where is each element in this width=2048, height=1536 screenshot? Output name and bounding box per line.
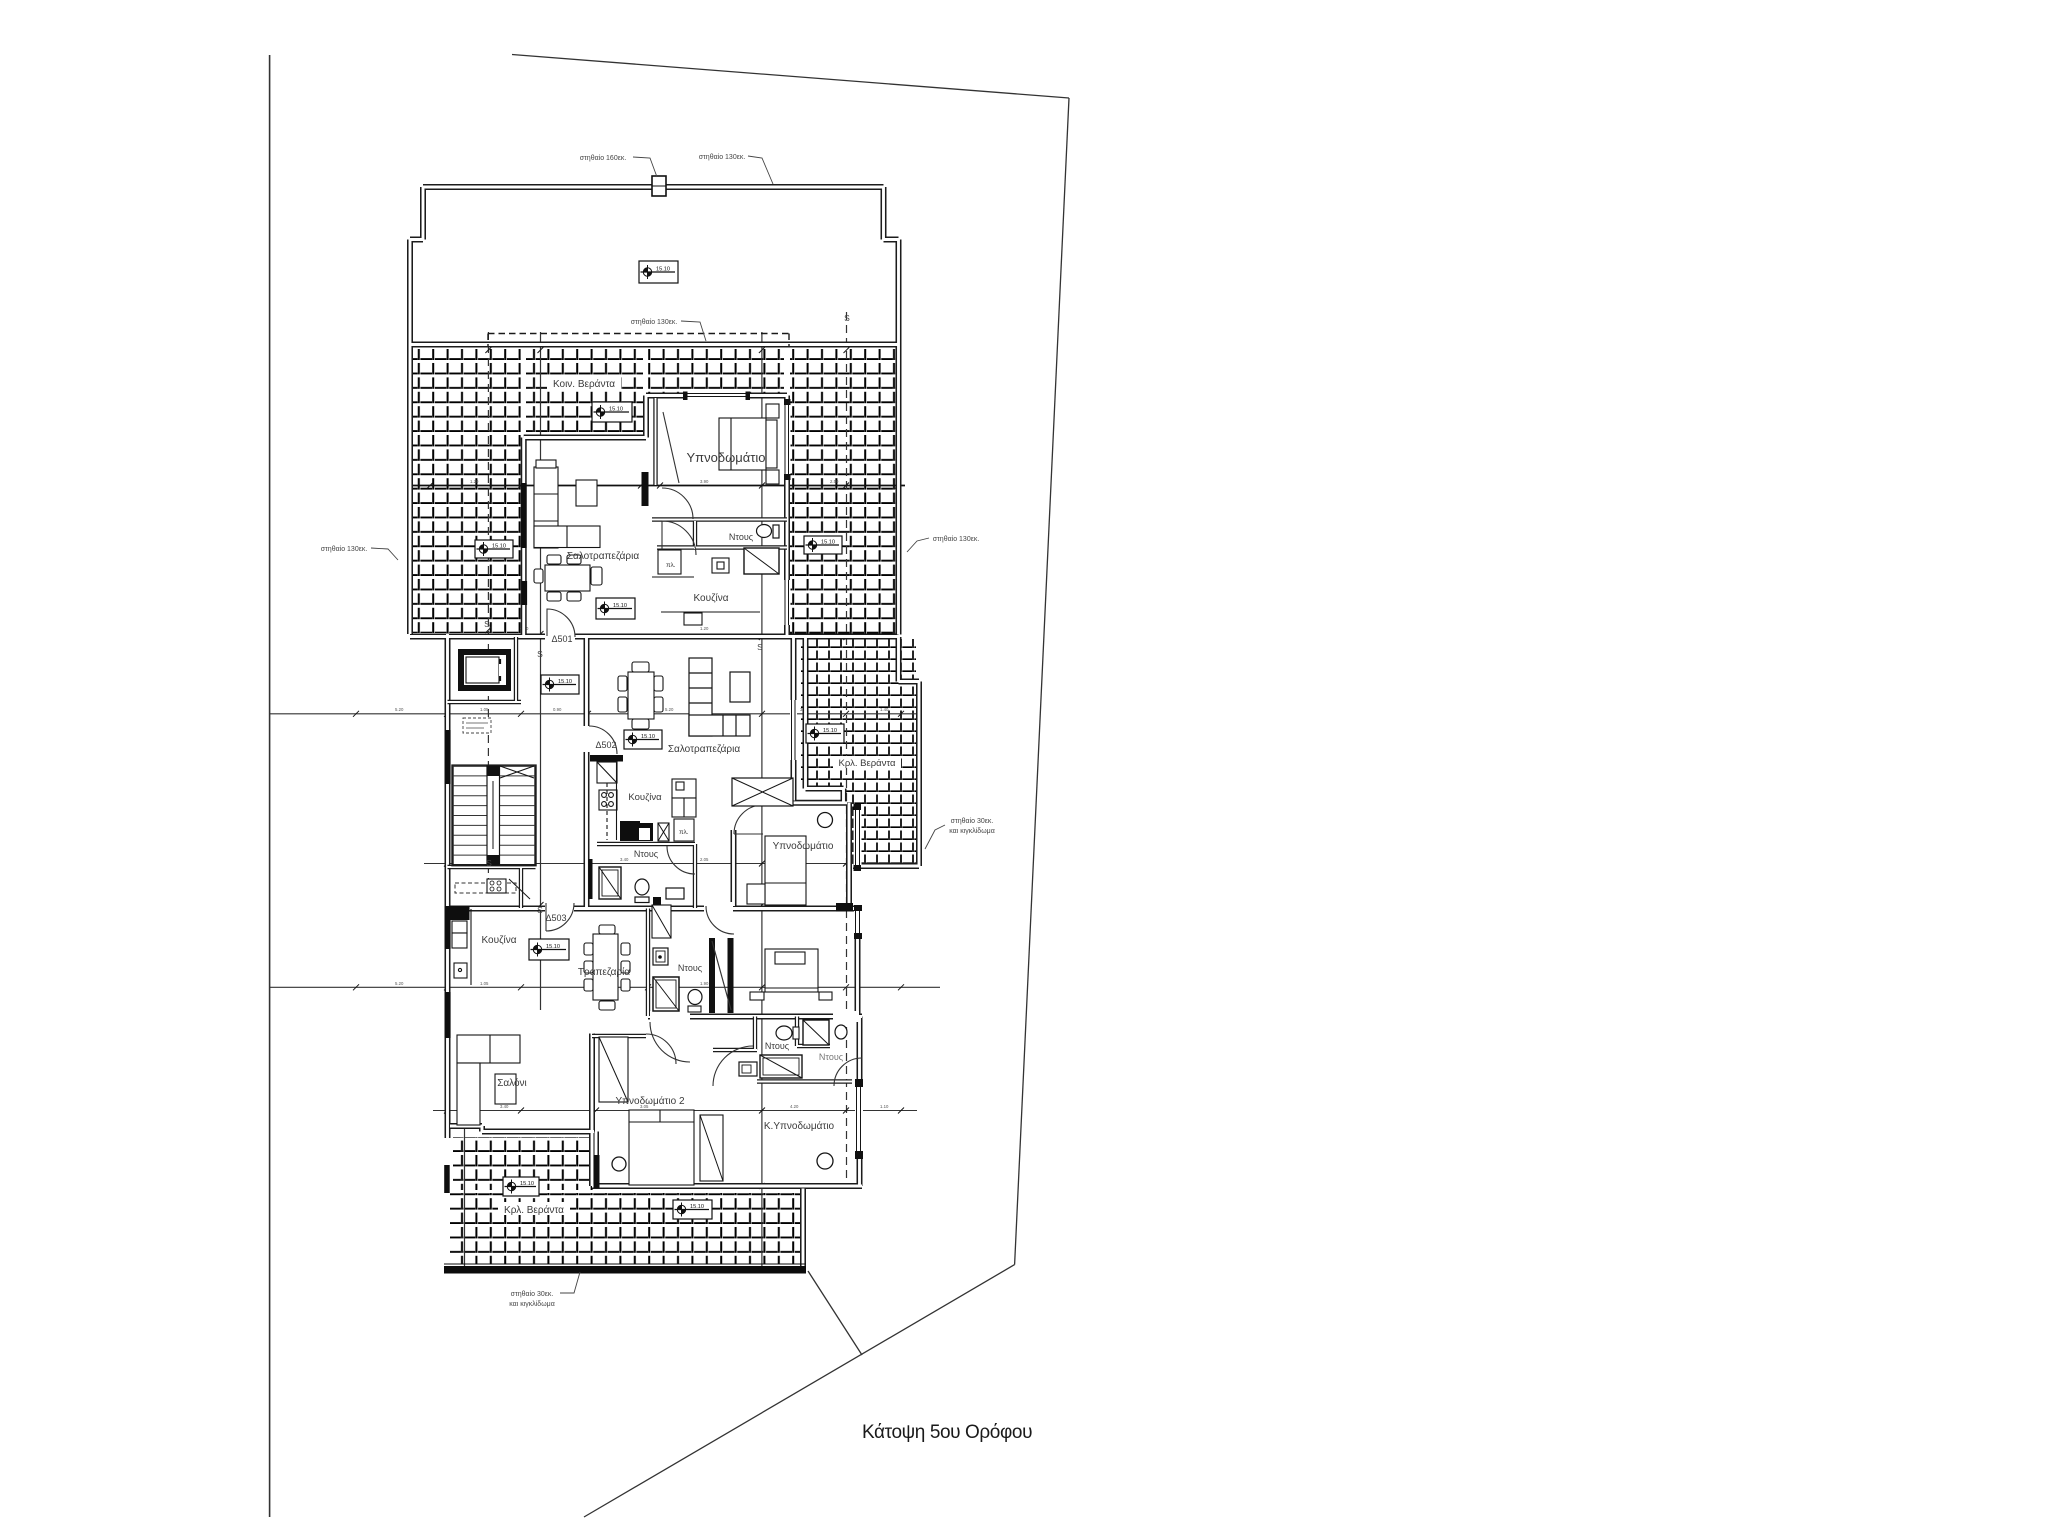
svg-text:στηθαίο 130εκ.: στηθαίο 130εκ.: [933, 535, 980, 543]
svg-text:3.40: 3.40: [500, 1104, 509, 1109]
svg-text:Κοιν. Βεράντα: Κοιν. Βεράντα: [553, 378, 615, 390]
svg-text:Υπνοδωμάτιο: Υπνοδωμάτιο: [773, 840, 834, 852]
svg-text:1.10: 1.10: [880, 1104, 889, 1109]
svg-text:2.05: 2.05: [700, 857, 709, 862]
svg-text:15.10: 15.10: [520, 1181, 534, 1187]
svg-text:15.10: 15.10: [656, 267, 670, 273]
svg-text:στηθαίο 30εκ.: στηθαίο 30εκ.: [511, 1290, 554, 1298]
svg-text:Τραπεζαρία: Τραπεζαρία: [578, 966, 630, 978]
svg-text:Δ502: Δ502: [595, 740, 616, 750]
svg-text:S: S: [486, 858, 492, 868]
svg-text:Κουζίνα: Κουζίνα: [694, 592, 729, 604]
svg-text:15.10: 15.10: [823, 728, 837, 734]
svg-text:Υπνοδωμάτιο 2: Υπνοδωμάτιο 2: [615, 1095, 685, 1107]
svg-text:S: S: [537, 905, 543, 915]
svg-text:1.90: 1.90: [700, 981, 709, 986]
svg-text:Κρλ. Βεράντα: Κρλ. Βεράντα: [839, 758, 896, 769]
svg-text:Ντους: Ντους: [765, 1041, 790, 1051]
svg-text:S: S: [757, 642, 763, 652]
svg-text:15.10: 15.10: [821, 540, 835, 546]
svg-text:Κάτοψη 5ου Ορόφου: Κάτοψη 5ου Ορόφου: [862, 1422, 1032, 1443]
svg-text:S: S: [537, 649, 543, 659]
svg-text:5.20: 5.20: [395, 981, 404, 986]
svg-text:πλ.: πλ.: [666, 562, 676, 569]
svg-text:Ντους: Ντους: [729, 532, 754, 542]
svg-text:Κ.Υπνοδωμάτιο: Κ.Υπνοδωμάτιο: [764, 1120, 835, 1132]
svg-text:15.10: 15.10: [613, 603, 627, 609]
svg-text:Δ503: Δ503: [545, 913, 566, 923]
svg-text:5.20: 5.20: [395, 707, 404, 712]
svg-text:Κρλ. Βεράντα: Κρλ. Βεράντα: [504, 1204, 564, 1216]
svg-text:0.90: 0.90: [553, 707, 562, 712]
svg-text:Ντους: Ντους: [678, 963, 703, 973]
svg-text:Σαλοτραπεζάρια: Σαλοτραπεζάρια: [567, 550, 639, 562]
svg-text:στηθαίο 130εκ.: στηθαίο 130εκ.: [699, 153, 746, 161]
svg-text:Δ501: Δ501: [551, 634, 572, 644]
svg-text:Ντους: Ντους: [819, 1052, 844, 1062]
svg-text:5.20: 5.20: [665, 707, 674, 712]
svg-text:1.05: 1.05: [480, 981, 489, 986]
svg-text:15.10: 15.10: [609, 407, 623, 413]
svg-text:Ντους: Ντους: [634, 849, 659, 859]
svg-text:S: S: [484, 619, 490, 629]
svg-text:15.10: 15.10: [690, 1204, 704, 1210]
svg-text:στηθαίο 130εκ.: στηθαίο 130εκ.: [321, 545, 368, 553]
svg-text:1.05: 1.05: [480, 707, 489, 712]
svg-text:2.50: 2.50: [830, 479, 839, 484]
svg-text:1.40: 1.40: [880, 707, 889, 712]
svg-text:S: S: [844, 313, 850, 323]
svg-text:15.10: 15.10: [558, 679, 572, 685]
svg-text:Σαλόνι: Σαλόνι: [497, 1077, 527, 1089]
svg-text:πλ.: πλ.: [679, 829, 689, 836]
svg-text:15.10: 15.10: [492, 544, 506, 550]
svg-text:και κιγκλίδωμα: και κιγκλίδωμα: [509, 1300, 555, 1308]
svg-text:3.90: 3.90: [700, 479, 709, 484]
svg-text:Υπνοδωμάτιο: Υπνοδωμάτιο: [686, 450, 765, 465]
svg-text:στηθαίο 130εκ.: στηθαίο 130εκ.: [631, 318, 678, 326]
svg-text:Κουζίνα: Κουζίνα: [628, 792, 662, 803]
svg-text:3.40: 3.40: [620, 857, 629, 862]
svg-text:Σαλοτραπεζάρια: Σαλοτραπεζάρια: [668, 743, 740, 755]
svg-text:15.10: 15.10: [641, 734, 655, 740]
svg-text:Κουζίνα: Κουζίνα: [482, 934, 517, 946]
svg-text:1.20: 1.20: [700, 626, 709, 631]
svg-text:4.20: 4.20: [790, 1104, 799, 1109]
svg-text:και κιγκλίδωμα: και κιγκλίδωμα: [949, 827, 995, 835]
svg-text:στηθαίο 160εκ.: στηθαίο 160εκ.: [580, 154, 627, 162]
svg-text:1.20: 1.20: [470, 479, 479, 484]
svg-text:στηθαίο 30εκ.: στηθαίο 30εκ.: [951, 817, 994, 825]
svg-text:15.10: 15.10: [546, 944, 560, 950]
